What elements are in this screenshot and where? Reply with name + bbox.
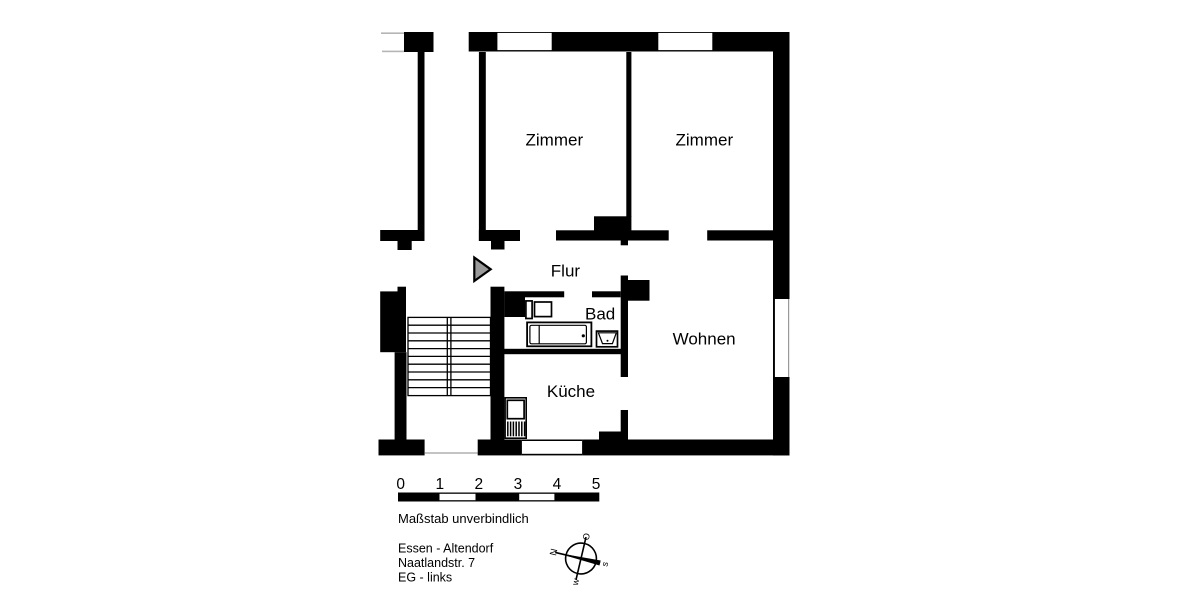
svg-text:5: 5 bbox=[592, 476, 601, 493]
svg-text:Zimmer: Zimmer bbox=[526, 131, 584, 150]
svg-text:Naatlandstr. 7: Naatlandstr. 7 bbox=[398, 556, 475, 570]
svg-text:EG - links: EG - links bbox=[398, 571, 452, 585]
svg-text:Flur: Flur bbox=[551, 262, 581, 281]
svg-text:Küche: Küche bbox=[547, 382, 595, 401]
svg-text:1: 1 bbox=[435, 476, 444, 493]
svg-text:Wohnen: Wohnen bbox=[673, 330, 736, 349]
svg-text:Bad: Bad bbox=[585, 305, 615, 324]
svg-text:4: 4 bbox=[553, 476, 562, 493]
svg-text:0: 0 bbox=[396, 476, 405, 493]
svg-text:3: 3 bbox=[514, 476, 523, 493]
svg-text:Zimmer: Zimmer bbox=[676, 131, 734, 150]
svg-text:Maßstab unverbindlich: Maßstab unverbindlich bbox=[398, 511, 529, 526]
svg-text:2: 2 bbox=[474, 476, 483, 493]
svg-text:Essen - Altendorf: Essen - Altendorf bbox=[398, 541, 494, 555]
